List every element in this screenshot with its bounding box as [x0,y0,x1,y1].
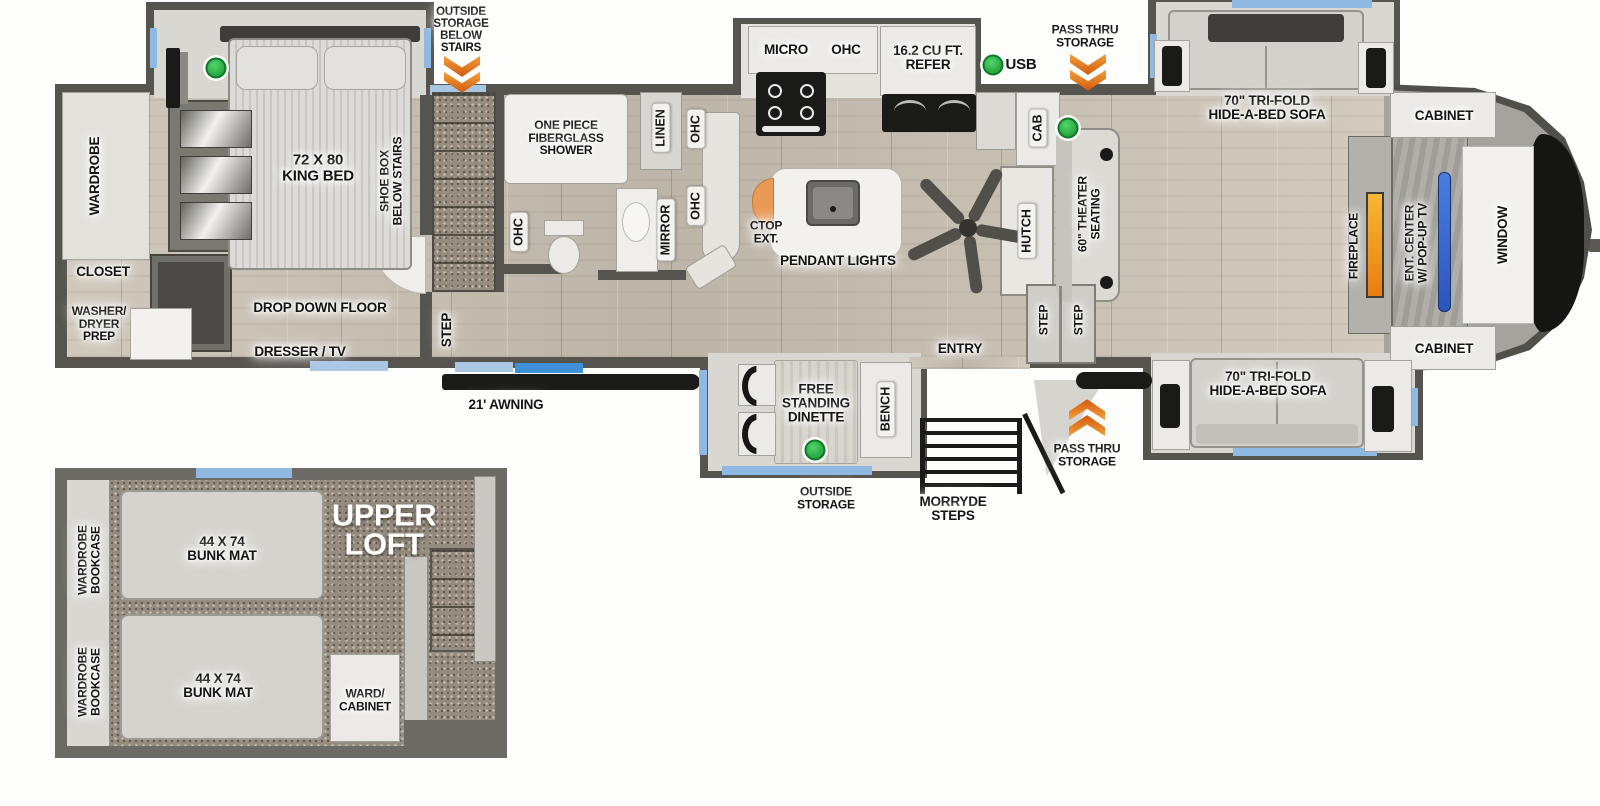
wardrobe-cabinet [62,92,150,260]
window-strip [1232,0,1372,8]
pillow [324,46,406,90]
morryde-steps-label: MORRYDE STEPS [919,495,986,523]
trifold-sofa-label: 70" TRI-FOLD HIDE-A-BED SOFA [1209,370,1326,398]
pass-thru-storage-label: PASS THRU STORAGE [1054,442,1121,467]
wardrobe-label: WARDROBE [88,137,102,216]
cabinet-label: CABINET [1415,109,1474,123]
trifold-sofa-label: 70" TRI-FOLD HIDE-A-BED SOFA [1208,94,1325,122]
kitchen-counter [976,92,1016,150]
burner [800,84,814,98]
drawer-front [180,202,252,240]
bunk-mat-label: 44 X 74 BUNK MAT [183,672,252,700]
refer-label: 16.2 CU FT. REFER [893,44,963,72]
window-strip [196,468,292,478]
window-strip [699,370,707,455]
outside-storage-label: OUTSIDE STORAGE [797,485,855,510]
slide-end-window-glass [1372,386,1394,432]
oven-handle [762,126,820,132]
pillow [236,46,318,90]
dresser-tv-label: DRESSER / TV [254,345,345,359]
outside-storage-below-stairs-label: OUTSIDE STORAGE BELOW STAIRS [433,6,488,54]
theater-seating-label: 60" THEATER SEATING [1076,176,1101,252]
bunk-mat-label: 44 X 74 BUNK MAT [187,535,256,563]
micro-label: MICRO [764,43,808,57]
island-sink-basin [813,187,853,219]
pass-thru-storage-label: PASS THRU STORAGE [1052,23,1119,48]
ohc-label: OHC [509,212,528,252]
vanity-sink [622,202,650,242]
fridge-handle [938,100,970,122]
bath-wall [496,92,504,292]
ohc-label: OHC [831,43,860,57]
entry-label: ENTRY [938,342,982,356]
wardrobe-bookcase-label: WARDROBE BOOKCASE [76,525,101,595]
chevron-down-icon [444,56,480,92]
drawer-front [180,110,252,148]
sofa-top-trifold [1208,14,1344,42]
ctop-ext-label: CTOP EXT. [750,219,782,244]
washer-cabinet [130,308,192,360]
window-strip [310,361,388,371]
faucet [830,206,836,212]
toilet-bowl [548,236,580,274]
toilet-tank [544,220,584,236]
awning-label: 21' AWNING [469,398,544,412]
burner [768,106,782,120]
bench-label: BENCH [876,381,895,437]
window-strip [150,28,157,68]
shower-label: ONE PIECE FIBERGLASS SHOWER [528,119,603,157]
slide-end-window-glass [1366,48,1386,88]
ohc-label: OHC [686,186,705,226]
loft-right-panel [474,476,496,662]
rear-stairs [432,92,496,292]
step-label: STEP [1038,305,1051,336]
slide-end-window-glass [1160,384,1180,428]
step-label: STEP [1073,305,1086,336]
entry-step-divider [1059,286,1062,362]
cabinet-label: CABINET [1415,342,1474,356]
pendant-lights-label: PENDANT LIGHTS [780,254,896,268]
kitchen-peninsula [702,112,740,262]
chevron-up-icon [1069,400,1105,436]
step-label: STEP [440,313,454,347]
awning-bar [442,374,700,390]
window-strip [515,363,583,373]
wardrobe-bookcase-label: WARDROBE BOOKCASE [76,647,101,717]
bedroom-wall [420,292,432,358]
window-strip [1412,388,1418,426]
window-strip [1233,448,1377,456]
theater-back [1056,128,1072,302]
window-label: WINDOW [1496,206,1510,264]
sofa-cushion-divider [1265,46,1267,88]
window-strip [424,28,431,68]
rv-floor-plan: WARDROBE CLOSET WASHER/ DRYER PREP 72 X … [0,0,1600,806]
mirror-label: MIRROR [656,199,675,262]
linen-label: LINEN [651,103,670,153]
usb-marker [983,55,1004,76]
hutch-label: HUTCH [1017,203,1036,259]
dinette-label: FREE STANDING DINETTE [782,383,850,426]
fireplace [1366,192,1384,298]
king-bed-label: 72 X 80 KING BED [282,152,354,184]
fireplace-label: FIREPLACE [1348,213,1361,279]
sofa-bottom-front [1196,424,1358,444]
fridge-handle [894,100,926,122]
cupholder [1100,276,1113,289]
entry-floor-patch [908,357,1030,369]
loft-return-wall [404,720,506,752]
bedroom-tv-screen [166,48,180,108]
upper-loft-label: UPPER LOFT [332,501,436,560]
shoe-box-label: SHOE BOX BELOW STAIRS [378,137,403,226]
morryde-steps [920,418,1022,494]
ent-center-label: ENT. CENTER W/ POP-UP TV [1403,203,1428,283]
ohc-label: OHC [686,109,705,149]
bedroom-wall [420,95,432,235]
drawer-front [180,156,252,194]
drop-down-floor-label: DROP DOWN FLOOR [253,301,386,315]
window-strip [455,362,513,372]
bedroom-tv [180,52,188,104]
washer-dryer-label: WASHER/ DRYER PREP [72,305,127,343]
closet-label: CLOSET [76,265,130,279]
cupholder [1100,148,1113,161]
cab-label: CAB [1028,108,1047,147]
slide-end-window-glass [1162,46,1182,86]
window-strip [722,466,872,475]
usb-marker [1058,118,1079,139]
chevron-down-icon [1070,54,1106,90]
usb-marker [805,440,826,461]
burner [768,84,782,98]
burner [800,106,814,120]
ward-cabinet-label: WARD/ CABINET [339,687,391,712]
popup-tv [1438,172,1451,312]
usb-label: USB [1005,57,1036,73]
usb-marker [206,58,227,79]
entry-awning-bar [1076,372,1152,389]
